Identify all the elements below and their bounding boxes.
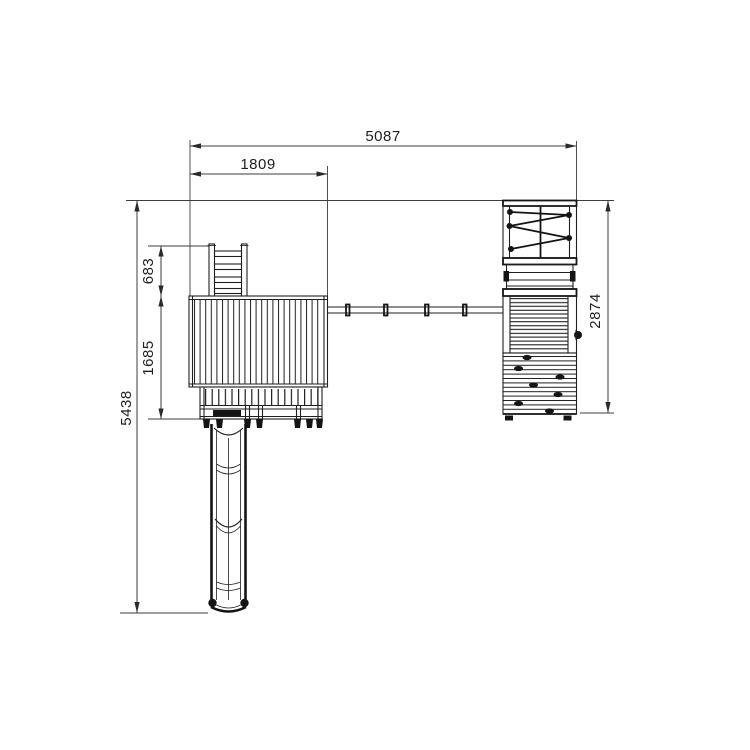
dim-label-right-module-depth: 2874 — [587, 293, 604, 328]
swing-beam — [328, 305, 504, 316]
dim-label-total-width: 5087 — [365, 128, 400, 145]
tower-roof — [189, 296, 328, 387]
dim-total-width: 5087 — [190, 128, 577, 149]
dim-label-total-depth: 5438 — [118, 390, 135, 425]
main-tower — [189, 244, 328, 428]
swing-hook — [574, 330, 582, 340]
dim-ladder-depth: 683 — [140, 246, 164, 296]
dim-tower-width: 1809 — [190, 156, 328, 177]
step-band-upper — [503, 258, 577, 265]
slide — [208, 424, 248, 612]
climbing-wall — [503, 353, 577, 414]
swing-hanger — [346, 305, 350, 316]
right-module — [503, 201, 582, 421]
upper-slat-deck — [504, 265, 576, 290]
swing-hanger — [384, 305, 388, 316]
dim-label-tower-depth: 1685 — [140, 340, 157, 375]
dim-tower-depth: 1685 — [140, 296, 164, 419]
middle-plank-section — [503, 296, 582, 353]
tower-anchor-feet — [203, 419, 323, 428]
step-band-lower — [503, 289, 577, 296]
right-module-top-band — [503, 201, 577, 207]
swing-hanger — [425, 305, 429, 316]
swing-hanger — [463, 305, 467, 316]
drawing-canvas: 5087 1809 5438 683 1685 — [0, 0, 750, 750]
dim-label-ladder-depth: 683 — [140, 258, 157, 285]
dim-right-module-depth: 2874 — [587, 201, 611, 414]
tower-platform — [200, 387, 322, 419]
playground-technical-drawing: 5087 1809 5438 683 1685 — [0, 0, 750, 750]
net-climber — [503, 206, 577, 258]
right-module-feet — [505, 416, 572, 421]
access-ladder — [208, 244, 249, 297]
dim-total-depth: 5438 — [118, 201, 140, 614]
dim-label-tower-width: 1809 — [240, 156, 275, 173]
